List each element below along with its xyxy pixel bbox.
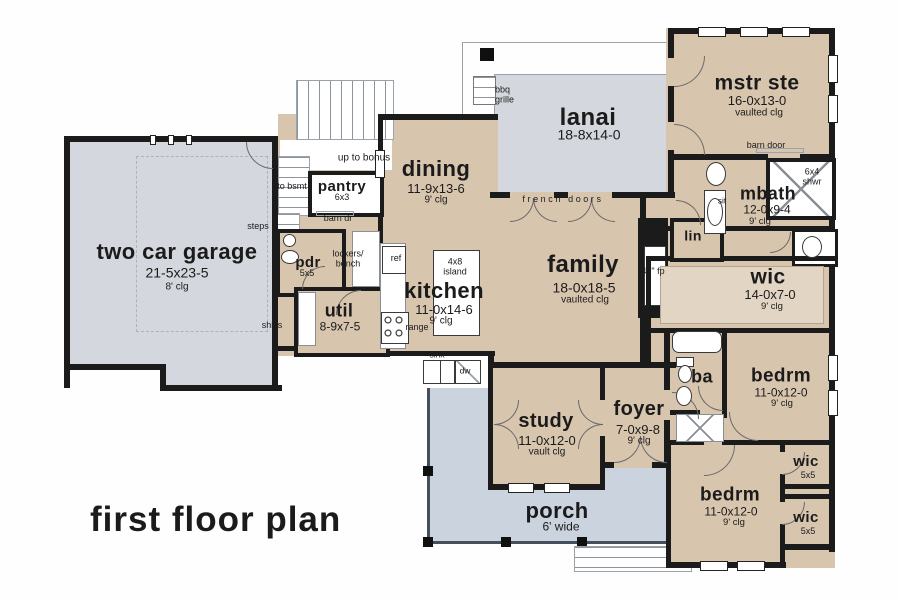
dining-label: dining: [402, 157, 470, 181]
kitchen-sink: [440, 360, 455, 384]
wall: [780, 484, 835, 489]
french-doors-label: french doors: [522, 195, 603, 205]
wall: [64, 364, 166, 370]
foyer-clg: 9' clg: [627, 437, 650, 448]
mbath-dims: 12-0x9-4: [743, 204, 790, 217]
dining-clg: 9' clg: [424, 196, 447, 207]
util-counter: [298, 292, 316, 346]
ba-toilet: [678, 365, 692, 383]
to-bsmt-label: to bsmt: [277, 182, 307, 192]
dw-label: dw: [460, 366, 471, 375]
wic2-dims: 5x5: [801, 527, 816, 537]
kitchen-label: kitchen: [404, 279, 484, 303]
window: [782, 27, 810, 37]
window: [186, 135, 192, 145]
bbq-post: [480, 48, 494, 61]
window: [828, 95, 838, 123]
mbath-sink: [706, 162, 726, 186]
porch-post: [423, 537, 433, 547]
ba-tub: [672, 331, 722, 353]
sink-label: sink: [429, 350, 444, 359]
wall: [160, 385, 282, 391]
wic1-dims: 5x5: [801, 471, 816, 481]
util-label: util: [325, 301, 354, 320]
bbq-grille: [473, 76, 496, 105]
wall: [668, 86, 674, 122]
pdr-dims: 5x5: [300, 269, 315, 279]
wall: [664, 328, 670, 390]
range-label: range: [405, 323, 428, 333]
mstr-clg: vaulted clg: [735, 109, 783, 120]
window: [740, 27, 768, 37]
ref-label: ref: [391, 254, 402, 264]
window: [828, 390, 838, 416]
porch-dims: 6' wide: [543, 521, 580, 534]
window: [508, 483, 534, 493]
family-dims: 18-0x18-5: [552, 280, 615, 295]
wall: [600, 462, 614, 468]
wall: [378, 114, 498, 120]
bedrm1-label: bedrm: [751, 367, 811, 388]
plan-title: first floor plan: [90, 500, 341, 540]
lanai-dims: 18-8x14-0: [557, 127, 620, 142]
wic-master-clg: 9' clg: [761, 302, 783, 312]
family-clg: vaulted clg: [561, 296, 609, 307]
steps-label: steps: [247, 222, 269, 232]
fireplace-label: 42" fp: [641, 267, 664, 277]
porch-floor: [430, 388, 492, 542]
bedrm2-label: bedrm: [700, 486, 760, 507]
floor-plan: two car garage 21-5x23-5 8' clg dining 1…: [0, 0, 900, 600]
pdr-sink: [283, 234, 296, 247]
wc-toilet: [802, 236, 822, 258]
porch-post: [501, 537, 511, 547]
wall: [780, 494, 835, 499]
range-burners: [381, 312, 407, 342]
study-label: study: [518, 411, 573, 433]
ba-label: ba: [691, 367, 713, 386]
bedrm2-clg: 9' clg: [723, 518, 745, 528]
mstr-dims: 16-0x13-0: [728, 94, 787, 108]
up-to-bonus-label: up to bonus: [338, 154, 390, 165]
island-label: 4x8 island: [439, 257, 471, 276]
shlvs-label: shlvs: [262, 321, 283, 331]
lockers-bench-label: lockers/ bench: [327, 249, 369, 268]
wic1-label: wic: [793, 454, 818, 470]
kitchen-clg: 9' clg: [429, 317, 452, 328]
porch-edge: [427, 541, 672, 544]
window: [698, 27, 726, 37]
window: [737, 561, 765, 571]
wic-shelving: [660, 266, 824, 324]
study-clg: vault clg: [529, 448, 566, 459]
window: [828, 55, 838, 83]
garage-dims: 21-5x23-5: [145, 265, 208, 280]
util-dims: 8-9x7-5: [320, 321, 361, 334]
mbath-clg: 9' clg: [749, 217, 771, 227]
roof-line: [462, 42, 674, 43]
barn-door-label: barn door: [747, 141, 786, 151]
window: [544, 483, 570, 493]
porch-post: [423, 466, 433, 476]
garage-clg: 8' clg: [165, 283, 188, 294]
mbath-label: mbath: [740, 184, 796, 203]
wall: [780, 544, 835, 550]
window: [168, 135, 174, 145]
ba-sink: [676, 386, 692, 406]
family-label: family: [547, 252, 619, 278]
lin-label: lin: [684, 228, 702, 243]
barn-dr-label: barn dr: [324, 214, 353, 224]
foyer-label: foyer: [614, 399, 665, 421]
wall: [600, 364, 605, 400]
wall: [490, 192, 510, 198]
window: [150, 135, 156, 145]
wic2-label: wic: [793, 510, 818, 526]
wic-master-label: wic: [750, 267, 785, 290]
wall: [722, 440, 835, 445]
window: [828, 355, 838, 381]
bedrm1-clg: 9' clg: [771, 399, 793, 409]
wall: [668, 28, 674, 58]
shower-label: 6x4 shwr: [798, 167, 826, 186]
wall: [780, 440, 785, 452]
bbq-grille-label: bbq grille: [495, 85, 525, 104]
garage-label: two car garage: [97, 240, 258, 264]
sit-label: sit: [718, 196, 727, 205]
pantry-dims: 6x3: [335, 193, 350, 203]
wall: [488, 358, 493, 490]
wall: [64, 136, 70, 388]
mstr-label: mstr ste: [715, 73, 800, 96]
window: [700, 561, 728, 571]
kitchen-sink: [423, 360, 441, 384]
